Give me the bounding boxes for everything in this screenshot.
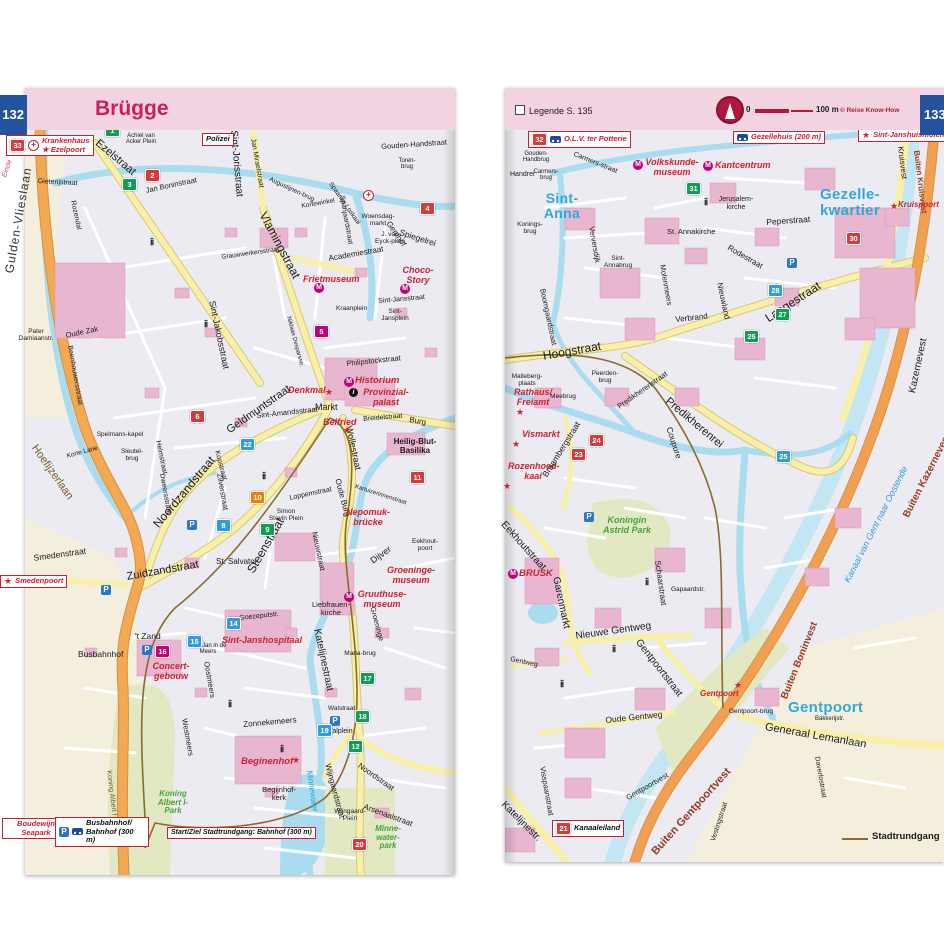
poi-label-gentpoort: Gentpoort	[700, 690, 739, 699]
callout-smedenpoort: ★Smedenpoort	[0, 575, 67, 588]
place-label-busbahnhof: Busbahnhof	[78, 650, 123, 659]
star-icon: ★	[4, 577, 12, 586]
monument-icon: ⅱ	[645, 578, 649, 587]
header-left: Brügge	[25, 88, 455, 130]
park-label-minnewaterpark: Minne-water-park	[370, 825, 406, 851]
place-label-torenbrug: Toren-brug	[393, 158, 421, 171]
star-icon: ★	[42, 145, 51, 154]
callout-kanaaleiland-label: Kanaaleiland	[574, 824, 620, 833]
marker-32: 32	[532, 133, 547, 146]
poi-label-brusk: BRUSK	[519, 569, 553, 579]
district-label-gezellekwartier: Gezelle-kwartier	[805, 187, 895, 219]
map-canvas-left	[25, 88, 455, 875]
place-label-sint-jansplein: Sint-Jansplein	[380, 308, 410, 322]
monument-icon: ⅱ	[280, 745, 284, 754]
place-label-sleutelbrug: Sleutel-brug	[115, 448, 149, 462]
place-label-meebrug: Meebrug	[548, 393, 578, 400]
museum-icon: M	[314, 283, 324, 293]
marker-8: 8	[216, 519, 231, 532]
star-icon: ★	[325, 388, 333, 397]
marker-3: 3	[122, 178, 137, 191]
marker-11: 11	[410, 471, 425, 484]
place-label-t-zand: 't Zand	[135, 632, 161, 641]
park-label-koning-albert-park: Koning Albert I-Park	[150, 790, 196, 816]
marker-28: 28	[768, 284, 783, 297]
star-icon: ★	[862, 131, 870, 140]
park-label-koningin-astrid-park: Koningin Astrid Park	[600, 516, 654, 535]
place-label-simon-stevin-plein: Simon Stevin Plein	[268, 508, 304, 522]
info-icon: i	[349, 388, 358, 397]
callout-olv-label: O.L.V. ter Potterie	[564, 135, 627, 144]
poi-label-begijnhofkerk: Begijnhof-kerk	[256, 786, 302, 802]
poi-label-provinzialpalast: Provinzial-palast	[360, 388, 412, 407]
compass-icon	[716, 96, 744, 124]
scale-bar	[755, 109, 789, 113]
map-spread: Brügge 132 133 Legende S. 135 0 100 m © …	[0, 0, 944, 944]
place-label-kraanplein: Kraanplein	[336, 305, 366, 312]
place-label-gouden-handbrug: Gouden-Handbrug	[516, 151, 556, 164]
poi-label-st-annakirche: St. Annakirche	[667, 228, 715, 236]
poi-label-choco-story: Choco-Story	[398, 266, 438, 285]
museum-icon: M	[633, 160, 643, 170]
poi-label-vismarkt: Vismarkt	[522, 430, 560, 440]
parking-icon: P	[187, 520, 197, 530]
marker-10: 10	[250, 491, 265, 504]
marker-9: 9	[260, 523, 275, 536]
marker-33: 33	[10, 139, 25, 152]
star-icon: ★	[890, 202, 898, 211]
marker-4: 4	[420, 202, 435, 215]
marker-30: 30	[846, 232, 861, 245]
callout-olv-ter-potterie: 32 O.L.V. ter Potterie	[528, 131, 631, 148]
hospital-cross-icon: +	[28, 140, 39, 151]
page-number-right: 133	[920, 95, 944, 135]
callout-stadtrundgang-label: Start/Ziel Stadtrundgang: Bahnhof (300 m…	[171, 829, 312, 837]
poi-label-heilig-blut-basilika: Heilig-Blut-Basilika	[388, 438, 442, 455]
monument-icon: ⅱ	[150, 238, 154, 247]
callout-ezelpoort-label: Ezelpoort	[51, 145, 85, 154]
parking-icon: P	[584, 512, 594, 522]
page-number-left: 132	[0, 95, 27, 135]
museum-icon: M	[344, 592, 354, 602]
street-label-gapaardstraat: Gapaardstr.	[671, 586, 705, 593]
marker-24: 24	[589, 434, 604, 447]
callout-krankenhaus-ezelpoort: 33 + Krankenhaus★ Ezelpoort	[6, 135, 94, 156]
callout-kanaaleiland: 21 Kanaaleiland	[552, 820, 624, 837]
marker-17: 17	[360, 672, 375, 685]
poi-label-sint-janshospitaal: Sint-Janshospitaal	[222, 636, 302, 646]
district-label-gentpoort: Gentpoort	[788, 700, 863, 716]
place-label-markt: Markt	[315, 403, 338, 413]
callout-bahnhof: P Busbahnhof/ Bahnhof (300 m)	[55, 817, 149, 847]
poi-label-frietmuseum: Frietmuseum	[303, 275, 360, 285]
marker-22: 22	[240, 438, 255, 451]
marker-31: 31	[686, 182, 701, 195]
marker-25: 25	[776, 450, 791, 463]
marker-27: 27	[775, 308, 790, 321]
poi-label-jerusalemkirche: Jerusalem-kirche	[712, 196, 760, 211]
monument-icon: ⅱ	[560, 680, 564, 689]
place-label-gentpoortbrug: Gentpoort-brug	[728, 708, 774, 715]
museum-icon: M	[344, 377, 354, 387]
poi-label-kantcentrum: Kantcentrum	[715, 161, 771, 171]
place-label-eekhoutpoort: Eekhout-poort	[405, 538, 445, 552]
poi-label-gruuthusemuseum: Gruuthuse-museum	[356, 590, 408, 609]
star-icon: ★	[503, 482, 511, 491]
parking-icon: P	[59, 827, 69, 837]
place-label-mariabrug: Maria-brug	[344, 650, 376, 657]
marker-21: 21	[556, 822, 571, 835]
parking-icon: P	[142, 645, 152, 655]
place-label-carmersbrug: Carmers-brug	[528, 169, 564, 182]
street-label-pater-damiaanstraat: Pater Damiaanstr.	[16, 328, 56, 342]
callout-polizei: Polizei	[202, 133, 234, 146]
marker-12: 12	[348, 740, 363, 753]
page-title: Brügge	[95, 98, 525, 121]
poi-label-historium: Historium	[355, 376, 399, 386]
marker-23: 23	[571, 448, 586, 461]
poi-label-liebfrauenkirche: Liebfrauen-kirche	[306, 601, 356, 617]
place-label-achiel-van-acker-plein: Achiel van Acker Plein	[123, 133, 159, 146]
street-label-einde: Einde	[1, 159, 14, 178]
marker-26: 26	[744, 330, 759, 343]
callout-smedenpoort-label: Smedenpoort	[15, 577, 63, 586]
street-label-bakkerijstraat: Bakkerijstr.	[815, 716, 844, 722]
monument-icon: ⅱ	[204, 320, 208, 329]
marker-19: 19	[317, 724, 332, 737]
star-icon: ★	[516, 408, 524, 417]
place-label-koningsbrug: Konings-brug	[512, 221, 548, 235]
parking-icon: P	[787, 258, 797, 268]
legend-checkbox-icon	[515, 105, 525, 115]
callout-polizei-label: Polizei	[206, 135, 230, 144]
poi-label-st-salvator: St. Salvator	[216, 558, 257, 567]
poi-label-beginenhof: Beginenhof	[241, 757, 293, 767]
star-icon: ★	[512, 440, 520, 449]
poi-label-kruispoort: Kruispoort	[898, 201, 939, 210]
marker-16: 16	[155, 645, 170, 658]
museum-icon: M	[508, 569, 518, 579]
parking-icon: P	[101, 585, 111, 595]
marker-18: 18	[355, 710, 370, 723]
marker-2: 2	[145, 169, 160, 182]
poi-label-groeningemuseum: Groeninge-museum	[385, 566, 437, 585]
monument-icon: ⅱ	[612, 645, 616, 654]
star-icon: ★	[343, 426, 351, 435]
route-line-sample	[842, 838, 868, 840]
star-icon: ★	[734, 681, 742, 690]
poi-label-denkmal: Denkmal	[288, 386, 326, 396]
street-label-walstraat: Walstraat	[328, 705, 355, 712]
marker-6: 6	[190, 410, 205, 423]
copyright: © Reise Know-How	[840, 107, 899, 114]
page-fold-left	[443, 88, 455, 875]
callout-gezellehuis-label: Gezellehuis (200 m)	[751, 133, 821, 142]
callout-stadtrundgang-start: Start/Ziel Stadtrundgang: Bahnhof (300 m…	[167, 827, 316, 839]
bus-icon	[737, 134, 748, 141]
legend-stadtrundgang: Stadtrundgang	[872, 832, 940, 842]
callout-gezellehuis: Gezellehuis (200 m)	[733, 131, 825, 144]
poi-label-nepomukbruecke: Nepomuk-brücke	[342, 508, 394, 527]
marker-15: 15	[187, 635, 202, 648]
monument-icon: ⅱ	[704, 198, 708, 207]
marker-5: 5	[314, 325, 329, 338]
marker-14: 14	[226, 617, 241, 630]
scale-zero: 0	[746, 106, 750, 115]
museum-icon: M	[703, 161, 713, 171]
marker-20: 20	[352, 838, 367, 851]
poi-label-volkskundemuseum: Volkskunde-museum	[645, 158, 699, 177]
scale-label: 100 m	[816, 106, 839, 115]
page-left	[25, 88, 455, 875]
star-icon: ★	[292, 756, 300, 765]
place-label-mallebergplaats: Malleberg-plaats	[507, 373, 547, 387]
scale-bar-thin	[791, 110, 813, 112]
place-label-peerdenbrug: Peerden-brug	[587, 370, 623, 384]
poi-label-spelmanskapel: Spelmans-kapel	[96, 431, 144, 438]
place-label-sint-annabrug: Sint-Annabrug	[600, 255, 636, 269]
monument-icon: ⅱ	[262, 472, 266, 481]
legend-note: Legende S. 135	[515, 105, 593, 117]
museum-icon: M	[400, 284, 410, 294]
bus-icon	[72, 828, 83, 835]
callout-bahnhof-label: Busbahnhof/ Bahnhof (300 m)	[86, 819, 144, 845]
poi-label-concertgebouw: Concert-gebouw	[148, 662, 194, 681]
monument-icon: ⅱ	[228, 700, 232, 709]
district-label-sint-anna: Sint-Anna	[540, 191, 584, 221]
hospital-cross-icon: +	[363, 190, 374, 201]
bus-icon	[550, 136, 561, 143]
